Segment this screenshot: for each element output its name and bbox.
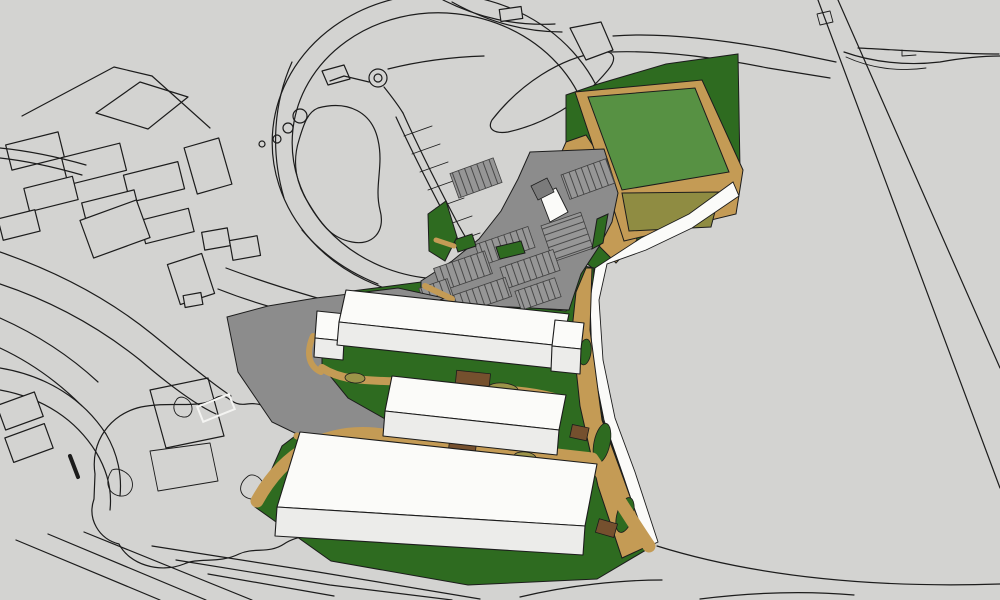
model-viewport[interactable] — [0, 0, 1000, 600]
building-1-roof-cube — [551, 320, 584, 374]
site-plan-svg — [0, 0, 1000, 600]
